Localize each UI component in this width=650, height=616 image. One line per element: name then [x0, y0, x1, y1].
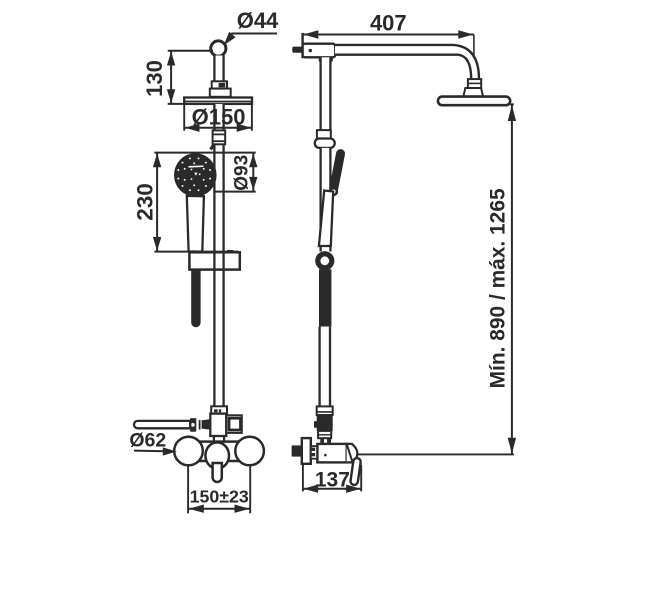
- svg-text:150±23: 150±23: [190, 487, 249, 507]
- svg-text:Ø44: Ø44: [237, 8, 279, 33]
- svg-text:407: 407: [370, 11, 407, 36]
- svg-text:137: 137: [315, 469, 350, 492]
- svg-text:Ø93: Ø93: [232, 155, 253, 191]
- svg-text:230: 230: [132, 183, 157, 221]
- svg-text:Mín. 890 / máx. 1265: Mín. 890 / máx. 1265: [487, 188, 510, 388]
- svg-text:130: 130: [142, 60, 167, 97]
- svg-text:Ø62: Ø62: [129, 430, 166, 452]
- svg-text:Ø150: Ø150: [192, 105, 246, 130]
